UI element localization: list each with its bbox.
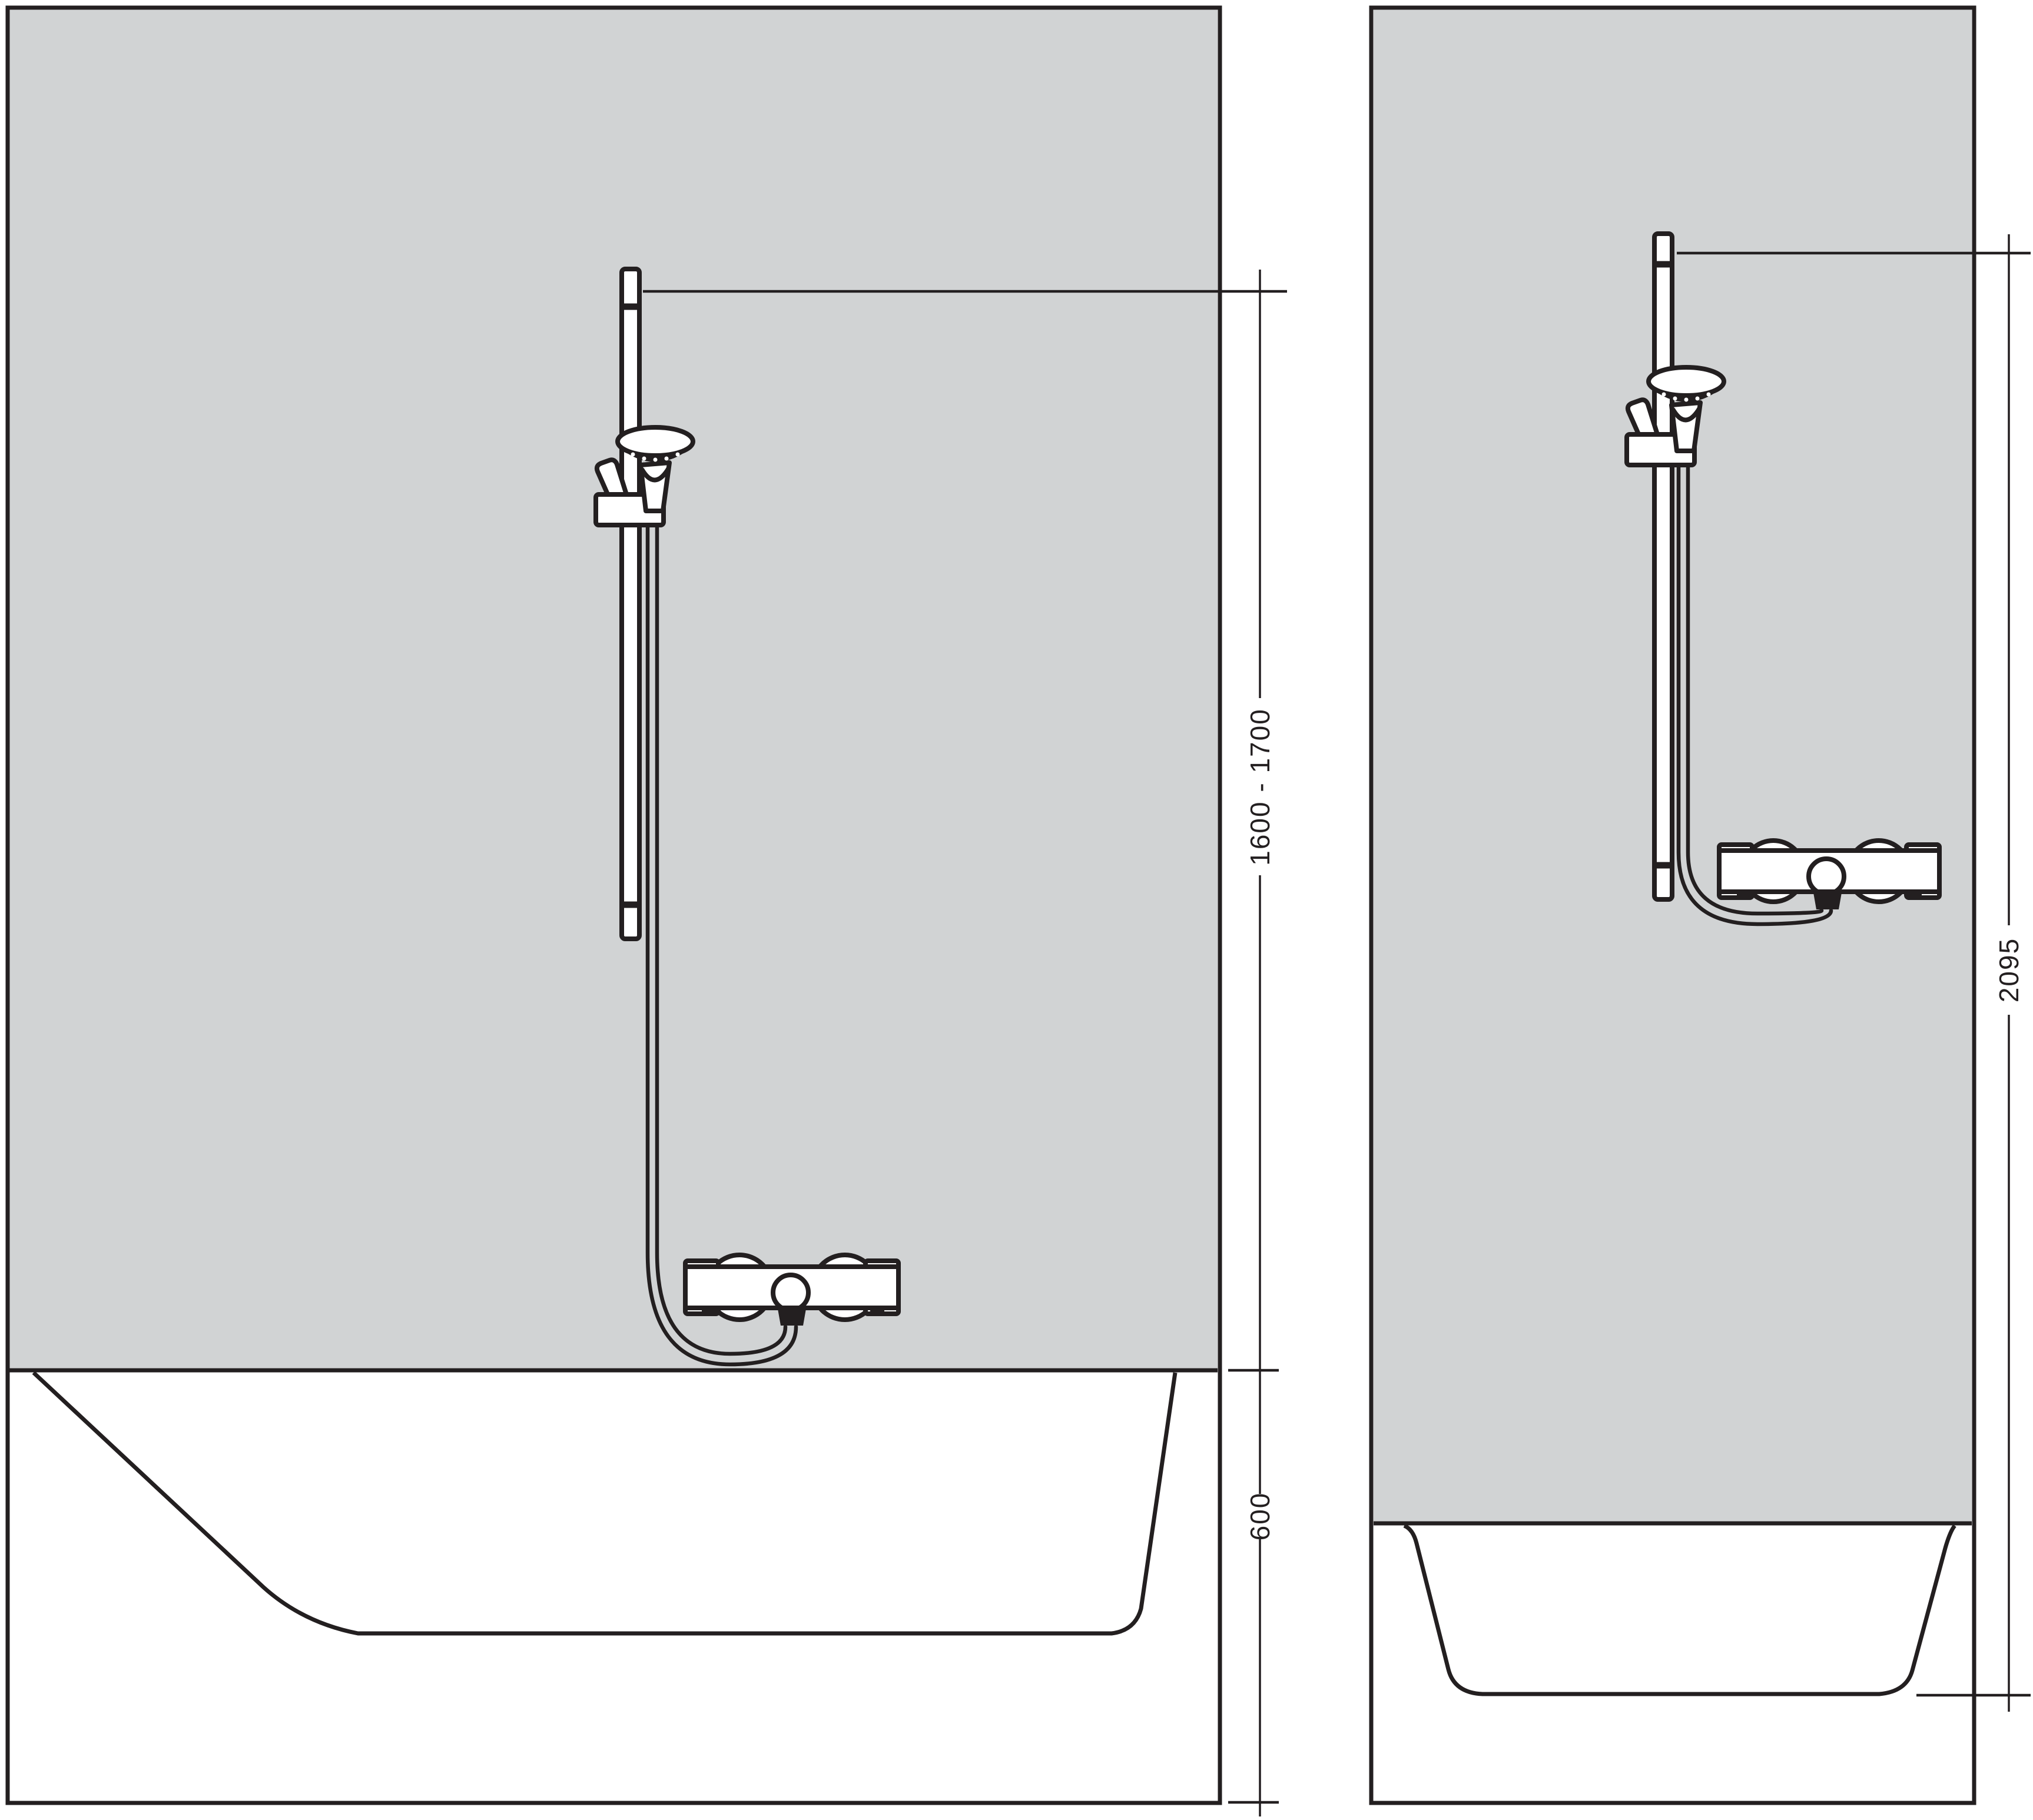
slide-bar <box>622 269 639 939</box>
shower-tray <box>1404 1526 1955 1694</box>
mixer-outlet-ring <box>1809 859 1844 894</box>
installation-drawing: 1600 - 1700 600 <box>0 0 2033 1820</box>
mixer-right-foot <box>1908 892 1922 899</box>
installation-drawing-page: 1600 - 1700 600 <box>0 0 2033 1820</box>
mixer-outlet-nut <box>777 1306 807 1326</box>
dimension-label-rim-to-floor: 600 <box>1245 1492 1275 1541</box>
shower-tray-panel <box>1374 9 1972 1694</box>
thermostatic-mixer <box>685 1255 898 1326</box>
mixer-outlet-nut <box>1813 889 1842 909</box>
bathtub-panel <box>9 9 1218 1633</box>
bathtub <box>34 1373 1175 1633</box>
wall-surface <box>9 9 1218 1370</box>
dimension-label-overall-height: 2095 <box>1994 938 2024 1002</box>
mixer-right-foot <box>870 1308 884 1315</box>
mixer-left-foot <box>702 1308 716 1315</box>
dimension-label-mounting-height: 1600 - 1700 <box>1245 708 1275 866</box>
mixer-left-foot <box>1737 892 1751 899</box>
slide-bar <box>1654 234 1672 899</box>
mixer-outlet-ring <box>773 1275 808 1310</box>
thermostatic-mixer <box>1719 841 1939 909</box>
